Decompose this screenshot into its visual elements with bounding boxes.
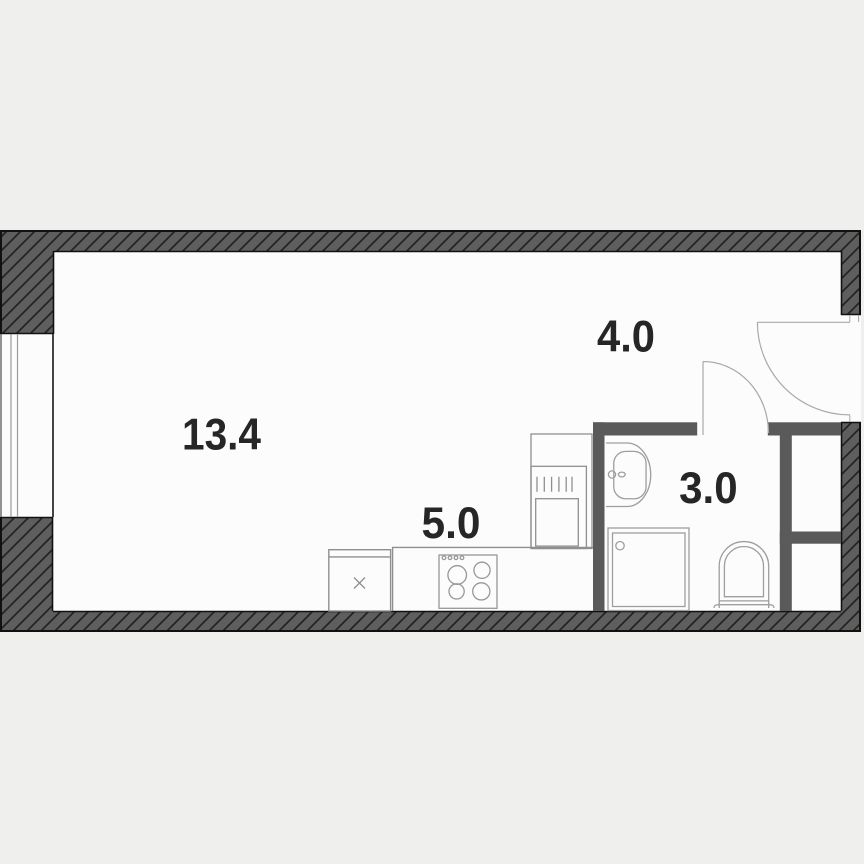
svg-text:13.4: 13.4 xyxy=(182,411,261,460)
svg-text:3.0: 3.0 xyxy=(679,464,738,513)
svg-text:4.0: 4.0 xyxy=(597,313,655,362)
svg-text:5.0: 5.0 xyxy=(422,499,481,548)
